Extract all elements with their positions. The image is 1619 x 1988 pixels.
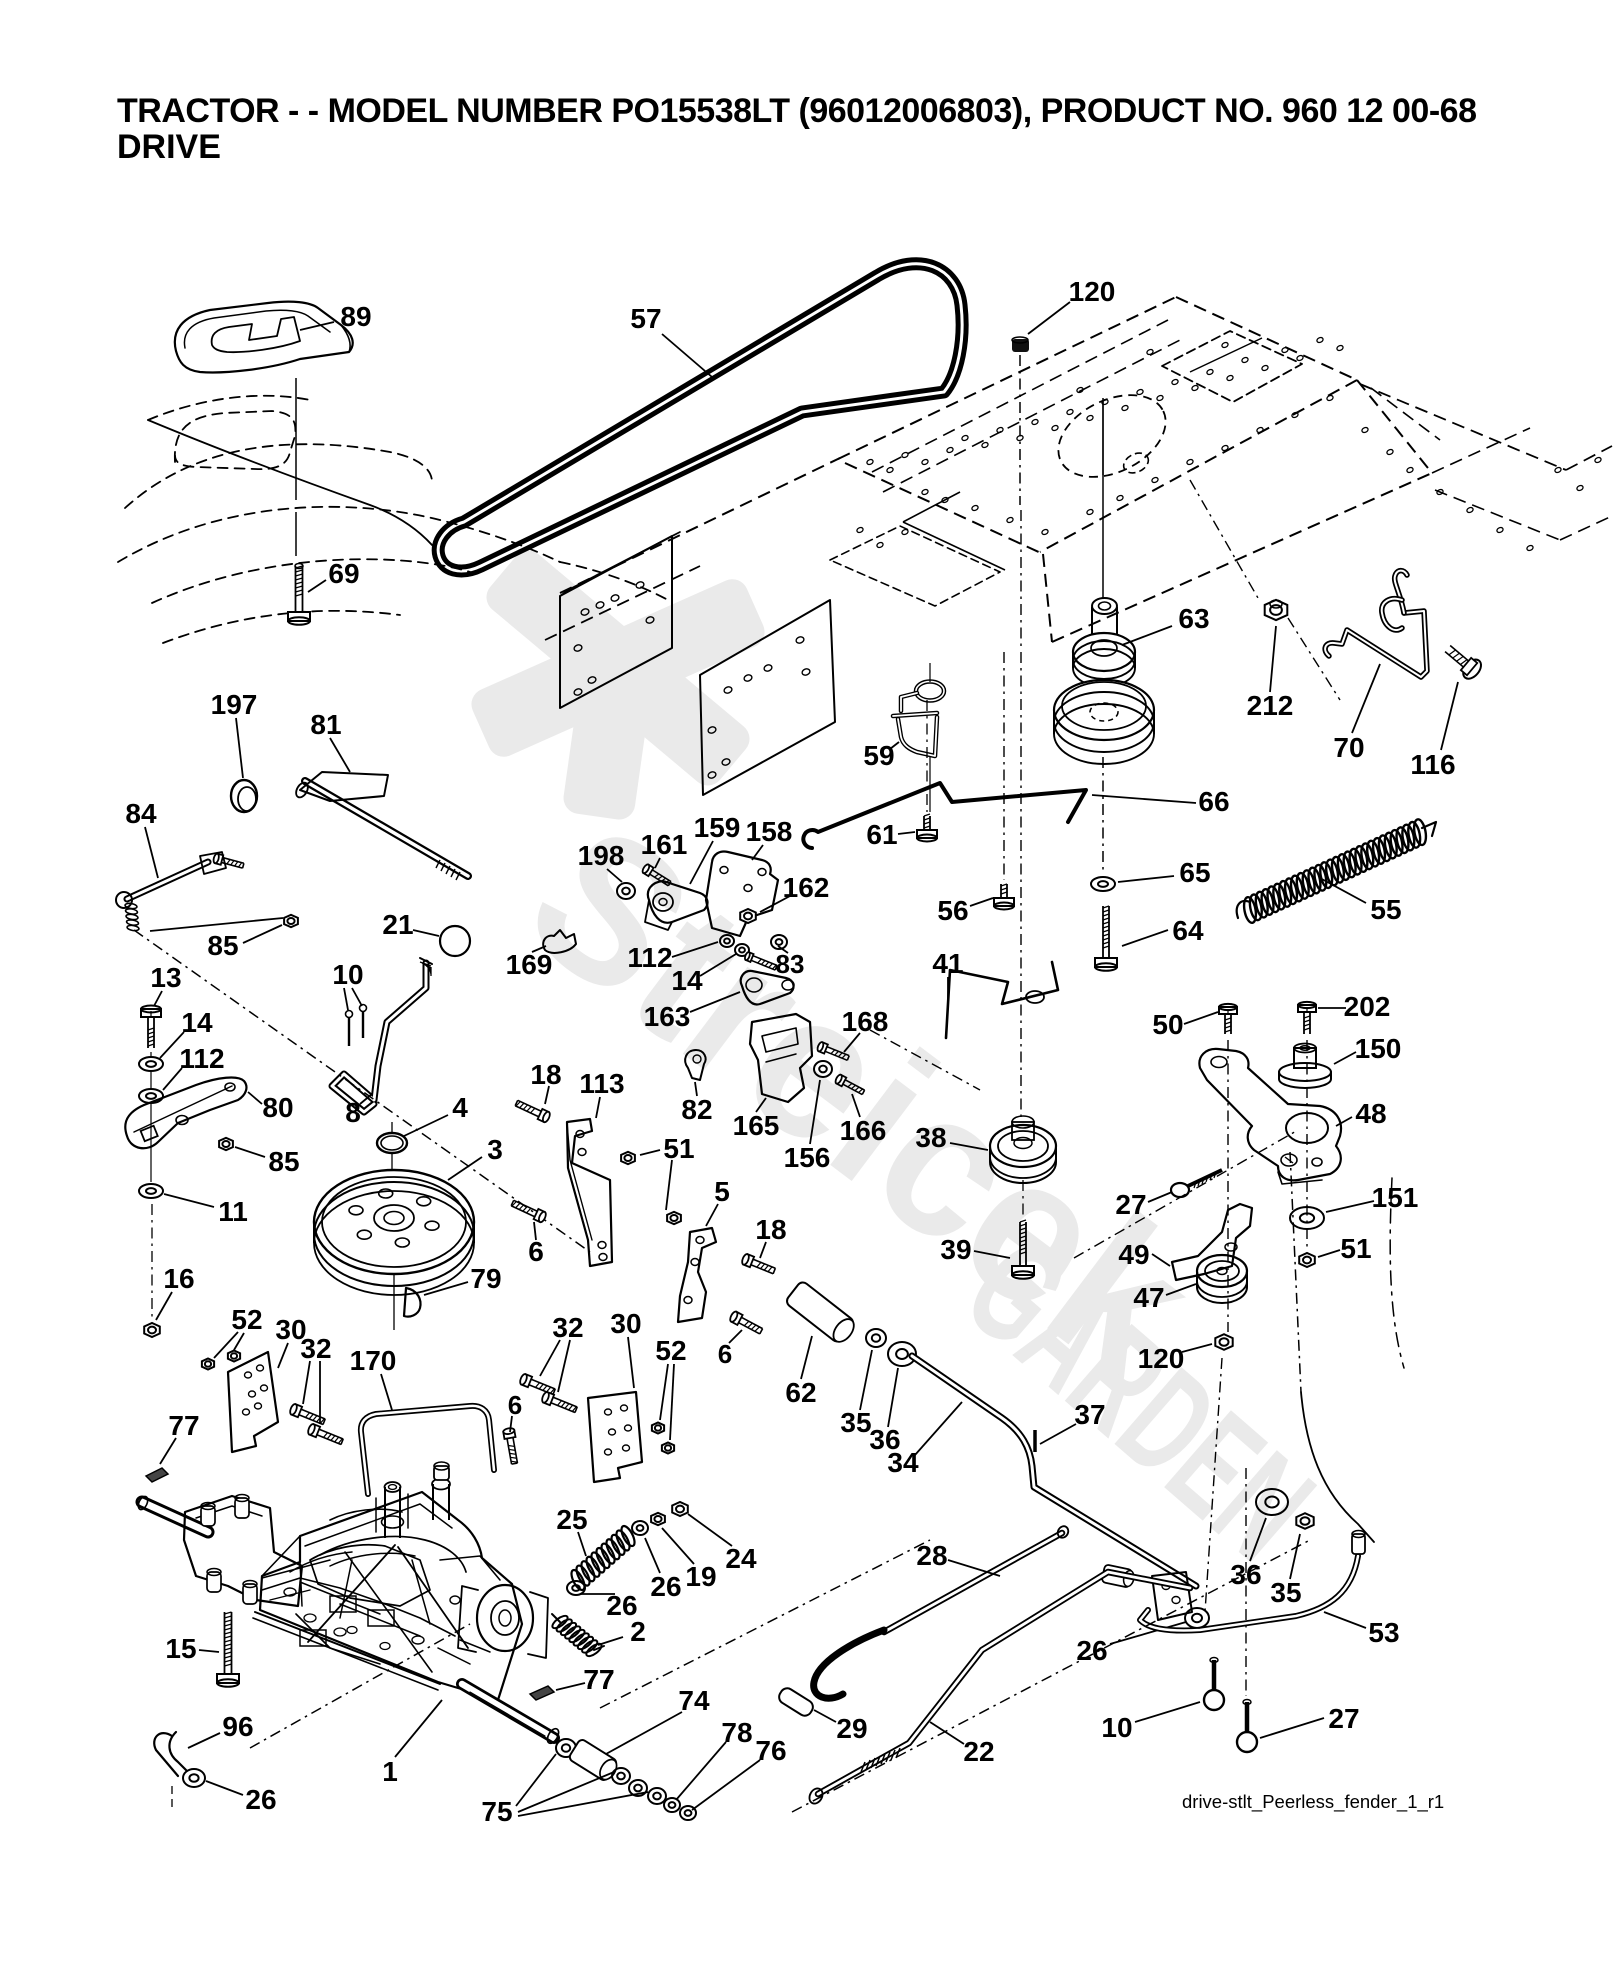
svg-text:48: 48 — [1355, 1098, 1386, 1129]
svg-text:41: 41 — [932, 948, 963, 979]
svg-text:202: 202 — [1344, 991, 1391, 1022]
svg-text:26: 26 — [245, 1784, 276, 1815]
svg-text:170: 170 — [350, 1345, 397, 1376]
svg-text:69: 69 — [328, 558, 359, 589]
svg-text:120: 120 — [1138, 1343, 1185, 1374]
svg-text:158: 158 — [746, 816, 793, 847]
svg-text:6: 6 — [508, 1390, 522, 1420]
svg-text:19: 19 — [685, 1561, 716, 1592]
svg-text:59: 59 — [863, 740, 894, 771]
svg-text:5: 5 — [714, 1176, 730, 1207]
svg-text:32: 32 — [552, 1312, 583, 1343]
svg-text:112: 112 — [179, 1043, 224, 1074]
svg-text:32: 32 — [300, 1333, 331, 1364]
svg-text:151: 151 — [1372, 1182, 1419, 1213]
svg-text:29: 29 — [836, 1713, 867, 1744]
svg-text:22: 22 — [963, 1736, 994, 1767]
svg-text:76: 76 — [755, 1735, 786, 1766]
svg-text:DRIVE: DRIVE — [117, 128, 221, 166]
svg-text:51: 51 — [1340, 1233, 1371, 1264]
svg-text:78: 78 — [721, 1717, 752, 1748]
svg-text:27: 27 — [1328, 1703, 1359, 1734]
svg-text:112: 112 — [627, 942, 672, 973]
svg-text:212: 212 — [1247, 690, 1294, 721]
svg-text:52: 52 — [231, 1304, 262, 1335]
svg-text:14: 14 — [671, 965, 703, 996]
svg-text:TRACTOR - - MODEL NUMBER PO155: TRACTOR - - MODEL NUMBER PO15538LT (9601… — [117, 92, 1477, 130]
svg-text:83: 83 — [776, 949, 805, 979]
svg-text:65: 65 — [1179, 857, 1210, 888]
svg-text:25: 25 — [556, 1504, 587, 1535]
svg-text:70: 70 — [1333, 732, 1364, 763]
svg-text:81: 81 — [310, 709, 341, 740]
svg-text:150: 150 — [1355, 1033, 1402, 1064]
svg-text:75: 75 — [481, 1796, 512, 1827]
svg-text:drive-stlt_Peerless_fender_1_r: drive-stlt_Peerless_fender_1_r1 — [1182, 1791, 1444, 1813]
svg-text:24: 24 — [725, 1543, 757, 1574]
svg-text:38: 38 — [915, 1122, 946, 1153]
svg-text:63: 63 — [1178, 603, 1209, 634]
svg-text:16: 16 — [163, 1263, 194, 1294]
svg-text:85: 85 — [207, 930, 238, 961]
svg-text:197: 197 — [211, 689, 258, 720]
svg-text:14: 14 — [181, 1007, 213, 1038]
svg-text:13: 13 — [150, 962, 181, 993]
svg-text:10: 10 — [1101, 1712, 1132, 1743]
svg-text:27: 27 — [1115, 1189, 1146, 1220]
svg-text:169: 169 — [506, 949, 553, 980]
svg-text:26: 26 — [650, 1571, 681, 1602]
svg-text:79: 79 — [470, 1263, 501, 1294]
svg-text:156: 156 — [784, 1142, 831, 1173]
svg-text:50: 50 — [1152, 1009, 1183, 1040]
svg-text:1: 1 — [382, 1756, 398, 1787]
svg-text:18: 18 — [755, 1214, 786, 1245]
svg-text:61: 61 — [866, 819, 897, 850]
svg-text:56: 56 — [937, 895, 968, 926]
svg-text:3: 3 — [487, 1134, 503, 1165]
svg-text:57: 57 — [630, 303, 661, 334]
svg-text:53: 53 — [1368, 1617, 1399, 1648]
svg-text:11: 11 — [218, 1196, 248, 1227]
svg-text:113: 113 — [579, 1068, 624, 1099]
svg-text:52: 52 — [655, 1335, 686, 1366]
svg-text:4: 4 — [452, 1092, 468, 1123]
svg-text:8: 8 — [345, 1097, 361, 1128]
svg-text:80: 80 — [262, 1092, 293, 1123]
svg-text:37: 37 — [1074, 1399, 1105, 1430]
svg-text:6: 6 — [528, 1236, 544, 1267]
svg-text:35: 35 — [840, 1407, 871, 1438]
svg-text:18: 18 — [530, 1059, 561, 1090]
svg-text:82: 82 — [681, 1094, 712, 1125]
svg-text:10: 10 — [332, 959, 363, 990]
svg-text:6: 6 — [718, 1339, 732, 1369]
svg-text:168: 168 — [842, 1006, 889, 1037]
svg-text:51: 51 — [663, 1133, 694, 1164]
svg-text:96: 96 — [222, 1711, 253, 1742]
svg-text:66: 66 — [1198, 786, 1229, 817]
svg-text:84: 84 — [125, 798, 157, 829]
svg-text:77: 77 — [168, 1410, 199, 1441]
svg-text:55: 55 — [1370, 894, 1401, 925]
svg-text:166: 166 — [840, 1115, 887, 1146]
svg-text:198: 198 — [578, 840, 625, 871]
svg-text:47: 47 — [1133, 1282, 1164, 1313]
svg-text:85: 85 — [268, 1146, 299, 1177]
svg-text:34: 34 — [887, 1447, 919, 1478]
svg-text:26: 26 — [1076, 1635, 1107, 1666]
svg-text:39: 39 — [940, 1234, 971, 1265]
svg-text:74: 74 — [678, 1685, 710, 1716]
svg-text:165: 165 — [733, 1110, 780, 1141]
svg-text:161: 161 — [641, 829, 688, 860]
svg-text:15: 15 — [165, 1633, 196, 1664]
svg-text:120: 120 — [1069, 276, 1116, 307]
svg-text:30: 30 — [610, 1308, 641, 1339]
svg-text:21: 21 — [382, 909, 413, 940]
svg-text:162: 162 — [783, 872, 830, 903]
svg-text:62: 62 — [785, 1377, 816, 1408]
svg-text:116: 116 — [1410, 749, 1455, 780]
svg-text:64: 64 — [1172, 915, 1204, 946]
svg-text:49: 49 — [1118, 1239, 1149, 1270]
svg-text:159: 159 — [694, 812, 741, 843]
svg-text:35: 35 — [1270, 1577, 1301, 1608]
svg-text:77: 77 — [583, 1664, 614, 1695]
svg-text:163: 163 — [644, 1001, 691, 1032]
